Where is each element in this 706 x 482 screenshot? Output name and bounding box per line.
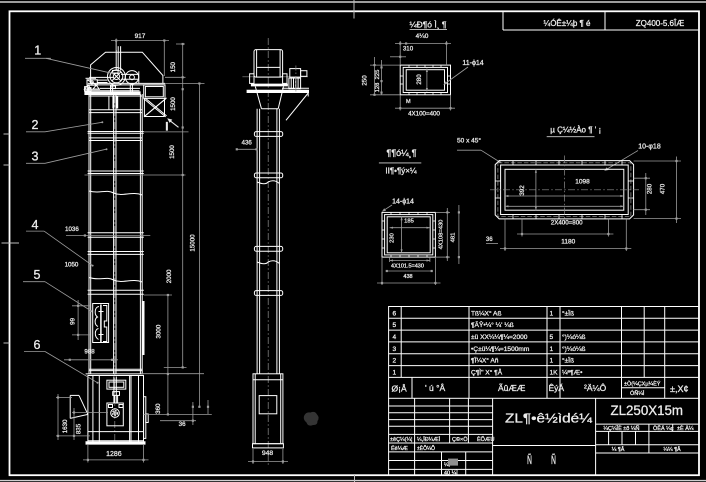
svg-text:310: 310 — [403, 46, 414, 53]
svg-text:' ú °Å: ' ú °Å — [425, 383, 445, 393]
svg-text:481: 481 — [451, 233, 457, 243]
svg-text:±êÇ¼(¼¦: ±êÇ¼(¼¦ — [390, 437, 412, 443]
svg-text:1036: 1036 — [65, 226, 79, 233]
svg-text:4: 4 — [393, 334, 397, 341]
svg-text:Ñ: Ñ — [527, 453, 532, 467]
svg-text:230: 230 — [390, 233, 396, 243]
svg-text:436: 436 — [242, 140, 253, 147]
svg-text:°)¼ó¼ß: °)¼ó¼ß — [562, 345, 586, 353]
svg-text:4X100=400: 4X100=400 — [408, 111, 440, 118]
svg-text:°)¼ó¼ß: °)¼ó¼ß — [562, 333, 586, 341]
svg-text:M: M — [406, 99, 411, 105]
svg-text:99: 99 — [70, 317, 77, 324]
svg-text:¼,ÏÐ¼ÆÌ: ¼,ÏÐ¼ÆÌ — [417, 436, 441, 443]
svg-text:10-φ18: 10-φ18 — [638, 144, 661, 151]
svg-text:1K: 1K — [550, 370, 559, 377]
svg-text:1180: 1180 — [561, 239, 575, 246]
svg-text:225: 225 — [375, 70, 381, 80]
svg-text:ÃûÆÆ: ÃûÆÆ — [498, 383, 526, 393]
svg-text:ÖÊÁ ¼ç: ÖÊÁ ¼ç — [653, 424, 674, 432]
svg-text:2X400=800: 2X400=800 — [551, 220, 583, 227]
svg-text:II¶•¶ý×¼: II¶•¶ý×¼ — [385, 167, 417, 176]
svg-text:6: 6 — [393, 310, 397, 317]
svg-text:4: 4 — [32, 218, 39, 232]
svg-text:¶Ï¼X° Añ: ¶Ï¼X° Añ — [471, 357, 499, 365]
svg-text:¼Ð¶ó Ì¸ ¶: ¼Ð¶ó Ì¸ ¶ — [409, 20, 446, 30]
svg-text:3: 3 — [32, 150, 39, 164]
svg-text:1: 1 — [34, 44, 41, 58]
svg-text:6: 6 — [34, 338, 41, 352]
svg-text:185: 185 — [404, 219, 414, 225]
svg-text:²Ä¼Ô: ²Ä¼Ô — [584, 383, 607, 393]
svg-text:µ Ç¼½Ào ¶ ' ¡: µ Ç¼½Ào ¶ ' ¡ — [550, 126, 601, 135]
svg-text:1: 1 — [393, 370, 397, 377]
svg-text:¼¼ ¶Å: ¼¼ ¶Å — [663, 446, 681, 453]
svg-text:°±Ïß: °±Ïß — [562, 309, 574, 317]
svg-text:4¼0: 4¼0 — [416, 33, 429, 40]
svg-text:280: 280 — [647, 183, 654, 194]
svg-text:1: 1 — [550, 310, 554, 317]
svg-text:ÊýÁ: ÊýÁ — [549, 383, 565, 393]
svg-text:250: 250 — [362, 75, 369, 86]
svg-text:±Ò(¼ÇXµ¼ÈÝ: ±Ò(¼ÇXµ¼ÈÝ — [624, 381, 661, 388]
svg-text:±,X¢: ±,X¢ — [670, 384, 688, 394]
svg-text:128: 128 — [375, 83, 381, 93]
svg-text:280: 280 — [416, 74, 423, 85]
svg-text:±ü XX¼¼¶¼=2000: ±ü XX¼¼¶¼=2000 — [471, 334, 528, 341]
svg-text:3: 3 — [393, 346, 397, 353]
svg-text:Ø¡Å: Ø¡Å — [392, 384, 407, 394]
svg-text:4X101.5=430: 4X101.5=430 — [391, 263, 424, 269]
svg-text:¼Ç¼ÎÈ ±ð ¼Ñ: ¼Ç¼ÎÈ ±ð ¼Ñ — [603, 425, 639, 432]
svg-text:1630: 1630 — [62, 419, 69, 433]
svg-text:ZL250X15m: ZL250X15m — [611, 403, 684, 418]
svg-text:5: 5 — [550, 334, 554, 341]
svg-text:ÈÕÆÚ: ÈÕÆÚ — [477, 436, 494, 443]
svg-text:ZL¶•ê½ìdé¼: ZL¶•ê½ìdé¼ — [505, 411, 592, 426]
svg-text:Tß¼X° Aß: Tß¼X° Aß — [471, 309, 501, 317]
svg-text:¶ÃŶ•¼° ¼' ¼ß: ¶ÃŶ•¼° ¼' ¼ß — [471, 320, 514, 329]
svg-text:1286: 1286 — [106, 451, 122, 458]
svg-text:¼ ¶Å: ¼ ¶Å — [612, 446, 625, 453]
svg-text:¼ÓÊ±¼þ ¶ é: ¼ÓÊ±¼þ ¶ é — [544, 19, 591, 28]
svg-text:2: 2 — [393, 358, 397, 365]
svg-text:•Ç±ü¼¶¼=1500mm: •Ç±ü¼¶¼=1500mm — [471, 346, 530, 353]
svg-text:14-ϕ14: 14-ϕ14 — [392, 199, 414, 206]
svg-text:1098: 1098 — [575, 178, 590, 185]
svg-text:36: 36 — [179, 421, 186, 428]
svg-text:988: 988 — [84, 349, 95, 356]
svg-text:5: 5 — [393, 322, 397, 329]
svg-text:917: 917 — [135, 33, 146, 40]
svg-text:ZQ400-5.6ÎÆ: ZQ400-5.6ÎÆ — [636, 19, 684, 28]
svg-text:150: 150 — [170, 61, 177, 72]
svg-text:Ç¶Ì" X° ¶Å: Ç¶Ì" X° ¶Å — [471, 368, 503, 377]
svg-text:1500: 1500 — [169, 145, 176, 159]
svg-text:5: 5 — [34, 268, 41, 282]
svg-text:948: 948 — [262, 450, 274, 457]
svg-text:50 x 45°: 50 x 45° — [457, 137, 481, 145]
svg-text:Éè¼Æ: Éè¼Æ — [391, 445, 408, 452]
svg-text:360: 360 — [155, 403, 162, 414]
svg-text:±È À¼: ±È À¼ — [677, 425, 694, 432]
svg-text:2: 2 — [32, 118, 39, 132]
svg-text:4X108=430: 4X108=430 — [439, 220, 445, 250]
svg-text:36: 36 — [486, 236, 493, 243]
svg-text:2000: 2000 — [166, 269, 173, 283]
svg-text:11-ϕ14: 11-ϕ14 — [462, 60, 483, 67]
svg-text:470: 470 — [660, 183, 667, 194]
svg-text:40 ¼Ì: 40 ¼Ì — [444, 470, 458, 477]
svg-text:ÓÑ¼Ì: ÓÑ¼Ì — [630, 390, 645, 397]
svg-text:±ÈÕ¼Õ: ±ÈÕ¼Õ — [417, 445, 435, 452]
svg-text:835: 835 — [76, 423, 83, 434]
svg-text:¶¶ó¼¸¶: ¶¶ó¼¸¶ — [386, 148, 416, 158]
svg-text:1500: 1500 — [170, 97, 177, 111]
svg-text:3000: 3000 — [155, 324, 162, 338]
svg-text:1: 1 — [550, 346, 554, 353]
svg-text:392: 392 — [519, 185, 526, 196]
svg-text:Ñ: Ñ — [551, 453, 556, 467]
svg-text:1050: 1050 — [65, 262, 79, 269]
svg-text:1: 1 — [550, 358, 554, 365]
svg-text:Ç©×Ö: Ç©×Ö — [452, 436, 468, 443]
svg-text:15000: 15000 — [189, 234, 196, 252]
svg-text:°±Ïß: °±Ïß — [562, 357, 574, 365]
svg-text:438: 438 — [403, 274, 412, 280]
svg-text:¼ª¶Æ•: ¼ª¶Æ• — [562, 370, 583, 377]
